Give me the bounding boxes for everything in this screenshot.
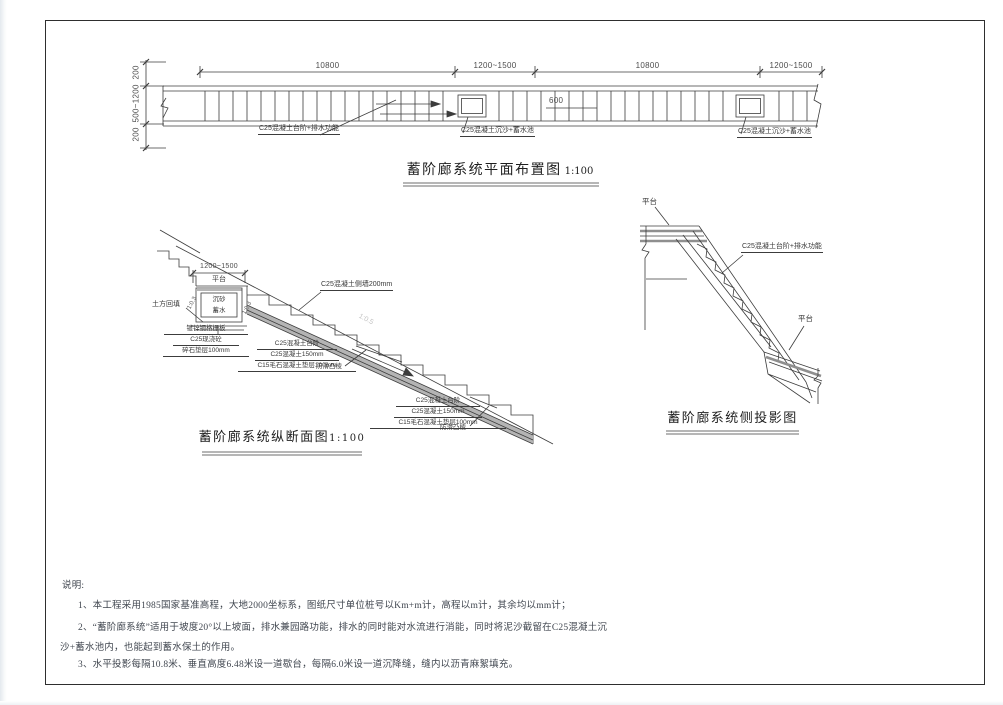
section-label-cast: C25现浇砼 [173,335,239,346]
plan-dim-1200-1500-1: 1200~1500 [455,62,535,71]
section-label-backfill: 土方回填 [152,301,180,309]
section-label-grating: 镀锌钢格栅板 [164,324,248,335]
drawing-sheet-page: 10800 1200~1500 10800 1200~1500 200 500~… [0,0,1003,705]
side-bottom-platform [764,352,822,381]
plan-dim-10800-1: 10800 [200,62,455,71]
plan-title-underline [403,183,599,186]
side-view-title-text: 蓄阶廊系统侧投影图 [667,411,798,426]
plan-view-title-text: 蓄阶廊系统平面布置图 [407,162,562,178]
plan-pool-1 [458,95,486,117]
plan-callout-pool-1: C25混凝土沉沙+蓄水池 [460,127,535,137]
plan-step-lines [205,91,807,121]
note-line-1: 1、本工程采用1985国家基准高程，大地2000坐标系，图纸尺寸单位桩号以Km+… [78,601,571,611]
plan-callout-pool-2: C25混凝土沉沙+蓄水池 [737,128,812,138]
section-view-title: 蓄阶廊系统纵断面图1:100 [198,431,366,445]
section-label-slab-2: C25混凝土150mm [394,407,482,418]
side-leader-lines [655,207,804,350]
plan-pool-2 [736,95,764,117]
section-label-antislip-1: 防滑凸棱 [316,363,342,370]
plan-dim-500-1200: 500~1200 [133,79,142,127]
plan-dim-line-left [140,59,166,151]
section-label-sidewall: C25混凝土侧墙200mm [320,281,393,291]
side-top-platform [640,226,707,241]
section-label-step-1: C25混凝土台阶 [257,339,337,350]
plan-dim-200-bottom: 200 [133,123,142,145]
plan-callout-steps: C25混凝土台阶+排水功能 [258,125,340,135]
section-view-title-scale: 1:100 [329,433,365,444]
plan-break-left-icon [161,98,168,118]
section-label-antislip-2: 防滑凸棱 [440,424,466,431]
section-view-title-text: 蓄阶廊系统纵断面图 [199,430,330,445]
section-label-step-2: C25混凝土台阶 [396,396,480,407]
section-label-stack-mid-2: C25混凝土台阶 C25混凝土150mm C15毛石混凝土垫层100mm [370,396,506,429]
note-line-3: 沙+蓄水池内，也能起到蓄水保土的作用。 [60,643,240,653]
notes-heading: 说明: [62,581,84,591]
plan-dim-1200-1500-2: 1200~1500 [760,62,822,71]
side-label-platform-top: 平台 [642,198,657,206]
section-label-platform: 平台 [205,276,233,284]
side-steps-zigzag [697,244,779,361]
side-label-steps: C25混凝土台阶+排水功能 [741,243,823,253]
note-line-2: 2、“蓄阶廊系统”适用于坡度20°以上坡面，排水兼园路功能，排水的同时能对水流进… [78,623,607,633]
plan-view-title: 蓄阶廊系统平面布置图1:100 [400,163,600,178]
section-upper-steps [157,251,196,286]
section-upper-ground [160,230,200,253]
side-label-platform-bottom: 平台 [798,315,813,323]
cad-linework [0,0,1003,705]
side-title-underline [666,431,799,434]
plan-view-title-scale: 1:100 [565,166,594,177]
section-title-underline [202,452,362,455]
section-pit-text-2: 蓄水 [202,307,236,314]
note-line-4: 3、水平投影每隔10.8米、垂直高度6.48米设一道歇台，每隔6.0米设一道沉降… [78,660,518,670]
section-label-cushion-2: C15毛石混凝土垫层100mm [370,418,506,429]
section-dim-platform: 1200~1500 [193,263,245,271]
side-view-drawing [640,207,822,434]
section-pit-text-1: 沉砂 [202,296,236,303]
section-label-slab-1: C25混凝土150mm [255,350,339,361]
plan-dim-10800-2: 10800 [535,62,760,71]
section-label-gravel: 碎石垫层100mm [163,346,249,357]
plan-dim-600: 600 [549,97,563,106]
side-view-title: 蓄阶廊系统侧投影图 [660,412,805,426]
